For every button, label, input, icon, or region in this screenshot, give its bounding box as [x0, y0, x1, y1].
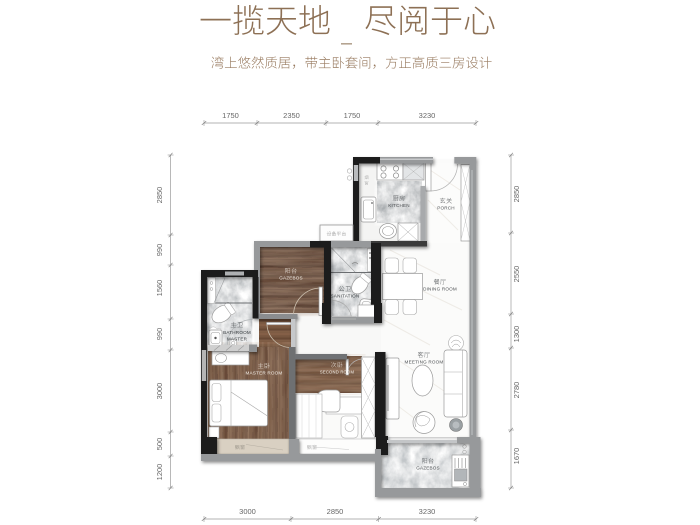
svg-text:2550: 2550 [512, 266, 521, 283]
svg-text:3000: 3000 [155, 383, 164, 400]
svg-text:1750: 1750 [222, 111, 239, 120]
svg-text:1300: 1300 [512, 326, 521, 343]
svg-text:2850: 2850 [512, 186, 521, 203]
svg-text:1200: 1200 [155, 464, 164, 481]
svg-text:990: 990 [155, 328, 164, 341]
svg-text:2850: 2850 [155, 187, 164, 204]
svg-text:2350: 2350 [283, 111, 300, 120]
svg-text:3230: 3230 [419, 111, 436, 120]
svg-text:PORCH: PORCH [437, 206, 455, 211]
svg-text:SECOND ROOM: SECOND ROOM [320, 370, 355, 375]
svg-text:500: 500 [155, 438, 164, 451]
svg-text:MASTER ROOM: MASTER ROOM [246, 371, 283, 376]
svg-text:2780: 2780 [512, 382, 521, 399]
svg-text:3000: 3000 [239, 507, 256, 516]
svg-text:3230: 3230 [419, 507, 436, 516]
svg-text:990: 990 [155, 244, 164, 257]
svg-text:SANITATION: SANITATION [331, 294, 360, 299]
svg-text:MASTER: MASTER [227, 337, 248, 342]
svg-text:KITCHEN: KITCHEN [388, 203, 410, 208]
svg-text:GAZEBOS: GAZEBOS [416, 466, 440, 471]
svg-text:1560: 1560 [155, 280, 164, 297]
svg-text:BATHROOM: BATHROOM [223, 330, 251, 335]
svg-text:1750: 1750 [344, 111, 361, 120]
svg-text:GAZEBOS: GAZEBOS [279, 276, 303, 281]
svg-text:MEETING ROOM: MEETING ROOM [405, 360, 444, 365]
svg-text:1670: 1670 [512, 448, 521, 465]
svg-text:2850: 2850 [327, 507, 344, 516]
svg-text:DINING ROOM: DINING ROOM [423, 287, 457, 292]
